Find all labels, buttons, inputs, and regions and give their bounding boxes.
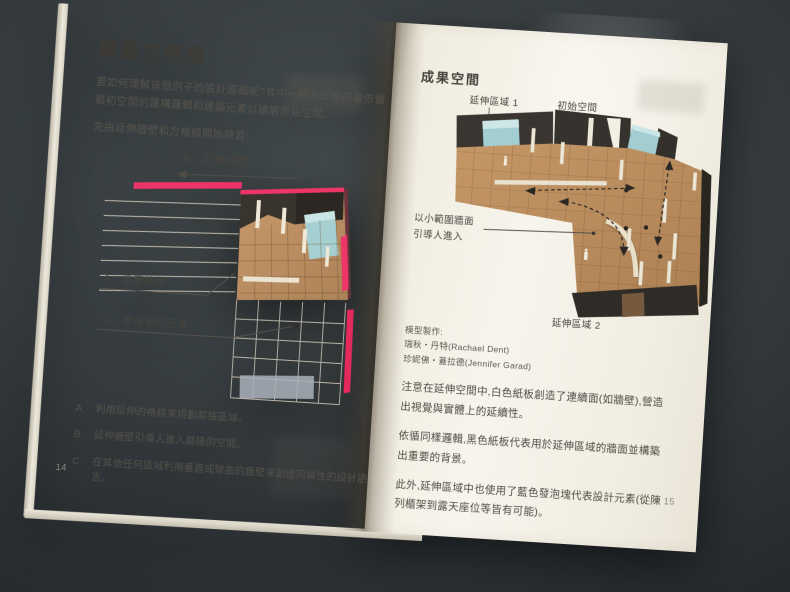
result-space-svg: 延伸區域 1 初始空間 [406,91,720,337]
label-extended-area-1: 延伸區域 1 [469,94,519,109]
list-text: 在其他任何區域利用垂直或彎曲的牆壁來創造同質性的設計語言。 [91,455,368,503]
page-title: 擴展方格線 [97,34,380,79]
result-space-model-photo: 延伸區域 1 初始空間 [406,91,720,337]
body-paragraphs: 注意在延伸空間中,白色紙板創造了連續面(如牆壁),營造出視覺與實體上的延續性。 … [394,378,674,531]
pink-vertical-wall-bar [342,309,355,394]
grid-extension-diagram: B . 延伸牆壁 A . 延展格線 C . 增設相同元素 [79,139,389,409]
label-b: B . 延伸牆壁 [183,151,249,168]
model [445,103,719,325]
model-photo [234,181,358,307]
page-number-left: 14 [56,462,68,473]
label-small-wall-line1: 以小範圍牆面 [414,212,475,228]
right-page: 成果空間 延伸區域 1 初始空間 [364,22,727,552]
label-c: C . 增設相同元素 [103,312,189,330]
page-number-right: 15 [664,496,676,507]
intro-paragraph: 要如何理解這個例子的設計邏輯呢?其中一種方式是試著依循最初空間的建構邏輯和建築元… [94,74,388,128]
same-element-dot [293,322,298,327]
list-text: 延伸牆壁引導人進入鄰接的空間。 [93,428,247,453]
label-a: A . 延展格線 [103,271,166,288]
open-book: 擴展方格線 要如何理解這個例子的設計邏輯呢?其中一種方式是試著依循最初空間的建構… [33,2,728,553]
arrowhead-left-icon [176,170,186,179]
step-notch [620,291,646,318]
paragraph: 此外,延伸區域中也使用了藍色發泡塊代表設計元素(從陳列櫃架到露天座位等皆有可能)… [394,475,668,531]
blue-gray-element [239,371,316,403]
list-text: 利用延伸的格線來規劃鄰接區域。 [95,402,249,427]
paragraph: 注意在延伸空間中,白色紙板創造了連續面(如牆壁),營造出視覺與實體上的延續性。 [400,378,674,434]
left-page: 擴展方格線 要如何理解這個例子的設計邏輯呢?其中一種方式是試著依循最初空間的建構… [33,2,396,532]
list-key: B. [73,427,94,444]
list-key: A. [75,401,96,418]
arrow-line-b [180,171,298,181]
label-small-wall-line2: 引導人進入 [413,228,464,243]
label-extended-area-2: 延伸區域 2 [551,317,601,332]
pink-extended-wall-bar [133,175,242,195]
guideline-list: A. 利用延伸的格線來規劃鄰接區域。 B. 延伸牆壁引導人進入鄰接的空間。 C.… [71,401,372,503]
paragraph: 依循同樣邏輯,黑色紙板代表用於延伸區域的牆面並構築出重要的背景。 [397,427,671,483]
list-item: C. 在其他任何區域利用垂直或彎曲的牆壁來創造同質性的設計語言。 [71,454,368,504]
grid-extension-diagram-svg: B . 延伸牆壁 A . 延展格線 C . 增設相同元素 [79,139,389,409]
list-key: C. [71,454,93,486]
